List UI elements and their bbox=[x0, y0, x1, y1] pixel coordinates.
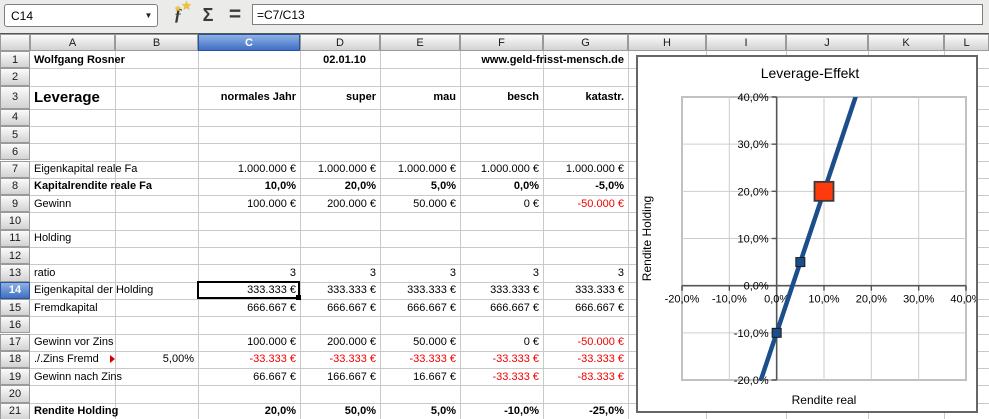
data-point-marker bbox=[796, 258, 805, 267]
cell-text: Rendite Holding bbox=[34, 405, 118, 417]
cell-E8[interactable]: 5,0% bbox=[380, 178, 460, 195]
cell-text: 100.000 € bbox=[247, 198, 296, 210]
cell-E17[interactable]: 50.000 € bbox=[380, 334, 460, 351]
cell-A13[interactable]: ratio bbox=[30, 264, 115, 281]
cell-G19[interactable]: -83.333 € bbox=[543, 368, 628, 385]
cell-text: 3 bbox=[618, 267, 624, 279]
y-tick-label: 0,0% bbox=[744, 281, 769, 293]
formula-input[interactable]: =C7/C13 bbox=[252, 4, 983, 25]
cell-text: katastr. bbox=[585, 91, 624, 103]
chart-title: Leverage-Effekt bbox=[761, 65, 860, 81]
y-tick-label: 20,0% bbox=[737, 186, 768, 198]
y-tick-label: 30,0% bbox=[737, 139, 768, 151]
cell-text: 333.333 € bbox=[490, 284, 539, 296]
cell-D7[interactable]: 1.000.000 € bbox=[300, 161, 380, 178]
cell-text: mau bbox=[433, 91, 456, 103]
cell-text: 3 bbox=[533, 267, 539, 279]
cell-C13[interactable]: 3 bbox=[198, 264, 300, 281]
star-icon: ★ bbox=[175, 5, 181, 13]
cell-F19[interactable]: -33.333 € bbox=[460, 368, 543, 385]
cell-E7[interactable]: 1.000.000 € bbox=[380, 161, 460, 178]
x-tick-label: 10,0% bbox=[808, 294, 839, 306]
cell-C15[interactable]: 666.667 € bbox=[198, 299, 300, 316]
cell-text: -33.333 € bbox=[330, 353, 376, 365]
cell-text: Leverage bbox=[34, 89, 100, 106]
formula-toolbar: C14 ▼ ƒ ★ ★ Σ = =C7/C13 bbox=[0, 0, 989, 34]
row-header-3[interactable]: 3 bbox=[0, 86, 30, 109]
cell-text: 50.000 € bbox=[413, 336, 456, 348]
cell-A21[interactable]: Rendite Holding bbox=[30, 403, 115, 419]
row-header-16[interactable]: 16 bbox=[0, 316, 30, 333]
cell-text: ratio bbox=[34, 267, 55, 279]
cell-text: 0,0% bbox=[514, 180, 539, 192]
cell-F13[interactable]: 3 bbox=[460, 264, 543, 281]
cell-text: 666.667 € bbox=[247, 302, 296, 314]
cell-text: 666.667 € bbox=[575, 302, 624, 314]
cell-text: -33.333 € bbox=[250, 353, 296, 365]
cell-text: 5,00% bbox=[163, 353, 194, 365]
column-header-A[interactable]: A bbox=[30, 34, 115, 51]
cell-text: 1.000.000 € bbox=[481, 163, 539, 175]
cell-text: 66.667 € bbox=[253, 371, 296, 383]
x-tick-label: 40,0% bbox=[950, 294, 976, 306]
leverage-chart-svg: 40,0%30,0%20,0%10,0%0,0%-10,0%-20,0%-20,… bbox=[638, 57, 976, 411]
cell-A15[interactable]: Fremdkapital bbox=[30, 299, 115, 316]
cell-text: ./.Zins Fremd bbox=[34, 353, 99, 365]
row-header-8[interactable]: 8 bbox=[0, 178, 30, 195]
cell-text: 200.000 € bbox=[327, 336, 376, 348]
cell-text: 3 bbox=[370, 267, 376, 279]
gridline bbox=[628, 51, 629, 419]
fill-handle[interactable] bbox=[296, 295, 301, 300]
leverage-chart[interactable]: 40,0%30,0%20,0%10,0%0,0%-10,0%-20,0%-20,… bbox=[636, 55, 978, 413]
row-header-14[interactable]: 14 bbox=[0, 282, 30, 299]
cell-text: 666.667 € bbox=[407, 302, 456, 314]
cell-A18[interactable]: ./.Zins Fremd bbox=[30, 351, 115, 368]
chevron-down-icon[interactable]: ▼ bbox=[140, 11, 157, 20]
cell-D21[interactable]: 50,0% bbox=[300, 403, 380, 419]
row-header-18[interactable]: 18 bbox=[0, 351, 30, 368]
cell-text: Wolfgang Rosner bbox=[34, 54, 125, 66]
cell-text: 20,0% bbox=[345, 180, 376, 192]
cell-G18[interactable]: -33.333 € bbox=[543, 351, 628, 368]
cell-G14[interactable]: 333.333 € bbox=[543, 282, 628, 299]
cell-text: 50,0% bbox=[345, 405, 376, 417]
cell-text: www.geld-frisst-mensch.de bbox=[481, 54, 624, 66]
column-header-C[interactable]: C bbox=[198, 34, 300, 51]
select-all-corner[interactable] bbox=[0, 34, 30, 51]
column-header-B[interactable]: B bbox=[115, 34, 198, 51]
column-header-J[interactable]: J bbox=[786, 34, 868, 51]
column-header-E[interactable]: E bbox=[380, 34, 460, 51]
selected-cell-outline[interactable] bbox=[197, 281, 300, 299]
cell-A14[interactable]: Eigenkapital der Holding bbox=[30, 282, 115, 299]
cell-text: 200.000 € bbox=[327, 198, 376, 210]
formula-equals-icon[interactable]: = bbox=[222, 2, 248, 28]
cell-text: 1.000.000 € bbox=[566, 163, 624, 175]
cell-A19[interactable]: Gewinn nach Zins bbox=[30, 368, 115, 385]
cell-text: -5,0% bbox=[595, 180, 624, 192]
cell-D17[interactable]: 200.000 € bbox=[300, 334, 380, 351]
column-header-K[interactable]: K bbox=[868, 34, 944, 51]
cell-D3[interactable]: super bbox=[300, 86, 380, 109]
cell-F8[interactable]: 0,0% bbox=[460, 178, 543, 195]
cell-text: 100.000 € bbox=[247, 336, 296, 348]
row-header-7[interactable]: 7 bbox=[0, 161, 30, 178]
cell-C9[interactable]: 100.000 € bbox=[198, 195, 300, 212]
cell-text: Kapitalrendite reale Fa bbox=[34, 180, 152, 192]
cell-text: 666.667 € bbox=[490, 302, 539, 314]
sum-icon[interactable]: Σ bbox=[196, 2, 220, 28]
cell-C7[interactable]: 1.000.000 € bbox=[198, 161, 300, 178]
cell-D19[interactable]: 166.667 € bbox=[300, 368, 380, 385]
cell-E1[interactable]: www.geld-frisst-mensch.de bbox=[380, 51, 628, 68]
cell-E15[interactable]: 666.667 € bbox=[380, 299, 460, 316]
formula-text: =C7/C13 bbox=[257, 8, 305, 22]
row-header-11[interactable]: 11 bbox=[0, 230, 30, 247]
cell-G7[interactable]: 1.000.000 € bbox=[543, 161, 628, 178]
cell-text: -50.000 € bbox=[578, 198, 624, 210]
cell-E18[interactable]: -33.333 € bbox=[380, 351, 460, 368]
cell-C21[interactable]: 20,0% bbox=[198, 403, 300, 419]
cell-F14[interactable]: 333.333 € bbox=[460, 282, 543, 299]
x-tick-label: -10,0% bbox=[712, 294, 747, 306]
cell-E21[interactable]: 5,0% bbox=[380, 403, 460, 419]
cell-text: -83.333 € bbox=[578, 371, 624, 383]
cell-text: -33.333 € bbox=[578, 353, 624, 365]
cell-F21[interactable]: -10,0% bbox=[460, 403, 543, 419]
y-tick-label: -10,0% bbox=[734, 328, 769, 340]
cell-text: 3 bbox=[290, 267, 296, 279]
data-point-marker bbox=[772, 328, 781, 337]
cell-text: -33.333 € bbox=[493, 353, 539, 365]
cell-F7[interactable]: 1.000.000 € bbox=[460, 161, 543, 178]
column-header-H[interactable]: H bbox=[628, 34, 706, 51]
cell-F18[interactable]: -33.333 € bbox=[460, 351, 543, 368]
row-header-13[interactable]: 13 bbox=[0, 264, 30, 281]
cell-text: 1.000.000 € bbox=[318, 163, 376, 175]
cell-D14[interactable]: 333.333 € bbox=[300, 282, 380, 299]
row-header-9[interactable]: 9 bbox=[0, 195, 30, 212]
cell-D8[interactable]: 20,0% bbox=[300, 178, 380, 195]
cell-D9[interactable]: 200.000 € bbox=[300, 195, 380, 212]
row-header-5[interactable]: 5 bbox=[0, 126, 30, 143]
y-tick-label: 40,0% bbox=[737, 92, 768, 104]
cell-B18[interactable]: 5,00% bbox=[115, 351, 198, 368]
cell-text: 5,0% bbox=[431, 180, 456, 192]
column-header-D[interactable]: D bbox=[300, 34, 380, 51]
cell-C18[interactable]: -33.333 € bbox=[198, 351, 300, 368]
cell-E13[interactable]: 3 bbox=[380, 264, 460, 281]
spreadsheet-app: C14 ▼ ƒ ★ ★ Σ = =C7/C13 ABCDEFGHIJKL1234… bbox=[0, 0, 989, 419]
cell-text: -33.333 € bbox=[410, 353, 456, 365]
star-icon: ★ bbox=[182, 1, 191, 12]
y-tick-label: 10,0% bbox=[737, 234, 768, 246]
column-header-I[interactable]: I bbox=[706, 34, 786, 51]
cell-text: 666.667 € bbox=[327, 302, 376, 314]
cell-text: 10,0% bbox=[265, 180, 296, 192]
cell-text: super bbox=[346, 91, 376, 103]
cell-text: 333.333 € bbox=[575, 284, 624, 296]
row-header-10[interactable]: 10 bbox=[0, 212, 30, 229]
x-tick-label: 30,0% bbox=[903, 294, 934, 306]
cell-F15[interactable]: 666.667 € bbox=[460, 299, 543, 316]
cell-A7[interactable]: Eigenkapital reale Fa bbox=[30, 161, 115, 178]
cell-D13[interactable]: 3 bbox=[300, 264, 380, 281]
cell-C19[interactable]: 66.667 € bbox=[198, 368, 300, 385]
cell-text: 16.667 € bbox=[413, 371, 456, 383]
cell-text: -33.333 € bbox=[493, 371, 539, 383]
cell-text: -25,0% bbox=[589, 405, 624, 417]
row-header-1[interactable]: 1 bbox=[0, 51, 30, 68]
cell-A9[interactable]: Gewinn bbox=[30, 195, 115, 212]
x-axis-title: Rendite real bbox=[792, 393, 857, 407]
column-header-L[interactable]: L bbox=[944, 34, 989, 51]
x-tick-label: 20,0% bbox=[856, 294, 887, 306]
cell-text: 333.333 € bbox=[407, 284, 456, 296]
cell-text: Fremdkapital bbox=[34, 302, 98, 314]
cell-G21[interactable]: -25,0% bbox=[543, 403, 628, 419]
cell-text: 333.333 € bbox=[327, 284, 376, 296]
row-header-12[interactable]: 12 bbox=[0, 247, 30, 264]
row-header-17[interactable]: 17 bbox=[0, 334, 30, 351]
y-axis-title: Rendite Holding bbox=[640, 196, 654, 281]
cell-text: 02.01.10 bbox=[323, 54, 366, 66]
column-header-F[interactable]: F bbox=[460, 34, 543, 51]
cell-C3[interactable]: normales Jahr bbox=[198, 86, 300, 109]
cell-D15[interactable]: 666.667 € bbox=[300, 299, 380, 316]
cell-A1[interactable]: Wolfgang Rosner bbox=[30, 51, 198, 68]
cell-text: 166.667 € bbox=[327, 371, 376, 383]
row-header-21[interactable]: 21 bbox=[0, 403, 30, 419]
cell-G15[interactable]: 666.667 € bbox=[543, 299, 628, 316]
cell-reference-box[interactable]: C14 ▼ bbox=[4, 4, 158, 27]
cell-text: -10,0% bbox=[504, 405, 539, 417]
cell-text: Eigenkapital reale Fa bbox=[34, 163, 137, 175]
x-tick-label: -20,0% bbox=[665, 294, 700, 306]
cell-F9[interactable]: 0 € bbox=[460, 195, 543, 212]
cell-F3[interactable]: besch bbox=[460, 86, 543, 109]
cell-text: Holding bbox=[34, 232, 71, 244]
cell-G9[interactable]: -50.000 € bbox=[543, 195, 628, 212]
row-header-4[interactable]: 4 bbox=[0, 109, 30, 126]
cell-A11[interactable]: Holding bbox=[30, 230, 115, 247]
row-header-15[interactable]: 15 bbox=[0, 299, 30, 316]
function-wizard-icon[interactable]: ƒ ★ ★ bbox=[164, 2, 192, 28]
cell-E3[interactable]: mau bbox=[380, 86, 460, 109]
cell-G3[interactable]: katastr. bbox=[543, 86, 628, 109]
cell-D18[interactable]: -33.333 € bbox=[300, 351, 380, 368]
row-header-6[interactable]: 6 bbox=[0, 143, 30, 160]
cell-text: -50.000 € bbox=[578, 336, 624, 348]
cell-E19[interactable]: 16.667 € bbox=[380, 368, 460, 385]
cell-text: 1.000.000 € bbox=[398, 163, 456, 175]
cell-text: 50.000 € bbox=[413, 198, 456, 210]
cell-F17[interactable]: 0 € bbox=[460, 334, 543, 351]
cell-E9[interactable]: 50.000 € bbox=[380, 195, 460, 212]
row-header-19[interactable]: 19 bbox=[0, 368, 30, 385]
cell-text: Gewinn bbox=[34, 198, 71, 210]
cell-text: 5,0% bbox=[431, 405, 456, 417]
cell-text: Gewinn vor Zins bbox=[34, 336, 113, 348]
highlight-point-marker bbox=[815, 182, 834, 201]
cell-E14[interactable]: 333.333 € bbox=[380, 282, 460, 299]
cell-D1[interactable]: 02.01.10 bbox=[300, 51, 380, 68]
cell-text: Gewinn nach Zins bbox=[34, 371, 122, 383]
cell-text: 20,0% bbox=[265, 405, 296, 417]
cell-text: besch bbox=[507, 91, 539, 103]
cell-text: 0 € bbox=[524, 198, 539, 210]
cell-C8[interactable]: 10,0% bbox=[198, 178, 300, 195]
cell-G8[interactable]: -5,0% bbox=[543, 178, 628, 195]
cell-A8[interactable]: Kapitalrendite reale Fa bbox=[30, 178, 115, 195]
cell-text: 1.000.000 € bbox=[238, 163, 296, 175]
cell-text: 3 bbox=[450, 267, 456, 279]
cell-text: 0 € bbox=[524, 336, 539, 348]
row-header-2[interactable]: 2 bbox=[0, 68, 30, 85]
cell-text: Eigenkapital der Holding bbox=[34, 284, 153, 296]
column-header-G[interactable]: G bbox=[543, 34, 628, 51]
cell-C17[interactable]: 100.000 € bbox=[198, 334, 300, 351]
cell-reference-value: C14 bbox=[5, 9, 140, 23]
cell-G13[interactable]: 3 bbox=[543, 264, 628, 281]
cell-text: normales Jahr bbox=[221, 91, 296, 103]
row-header-20[interactable]: 20 bbox=[0, 385, 30, 402]
cell-A17[interactable]: Gewinn vor Zins bbox=[30, 334, 115, 351]
cell-A3[interactable]: Leverage bbox=[30, 86, 198, 109]
cell-G17[interactable]: -50.000 € bbox=[543, 334, 628, 351]
